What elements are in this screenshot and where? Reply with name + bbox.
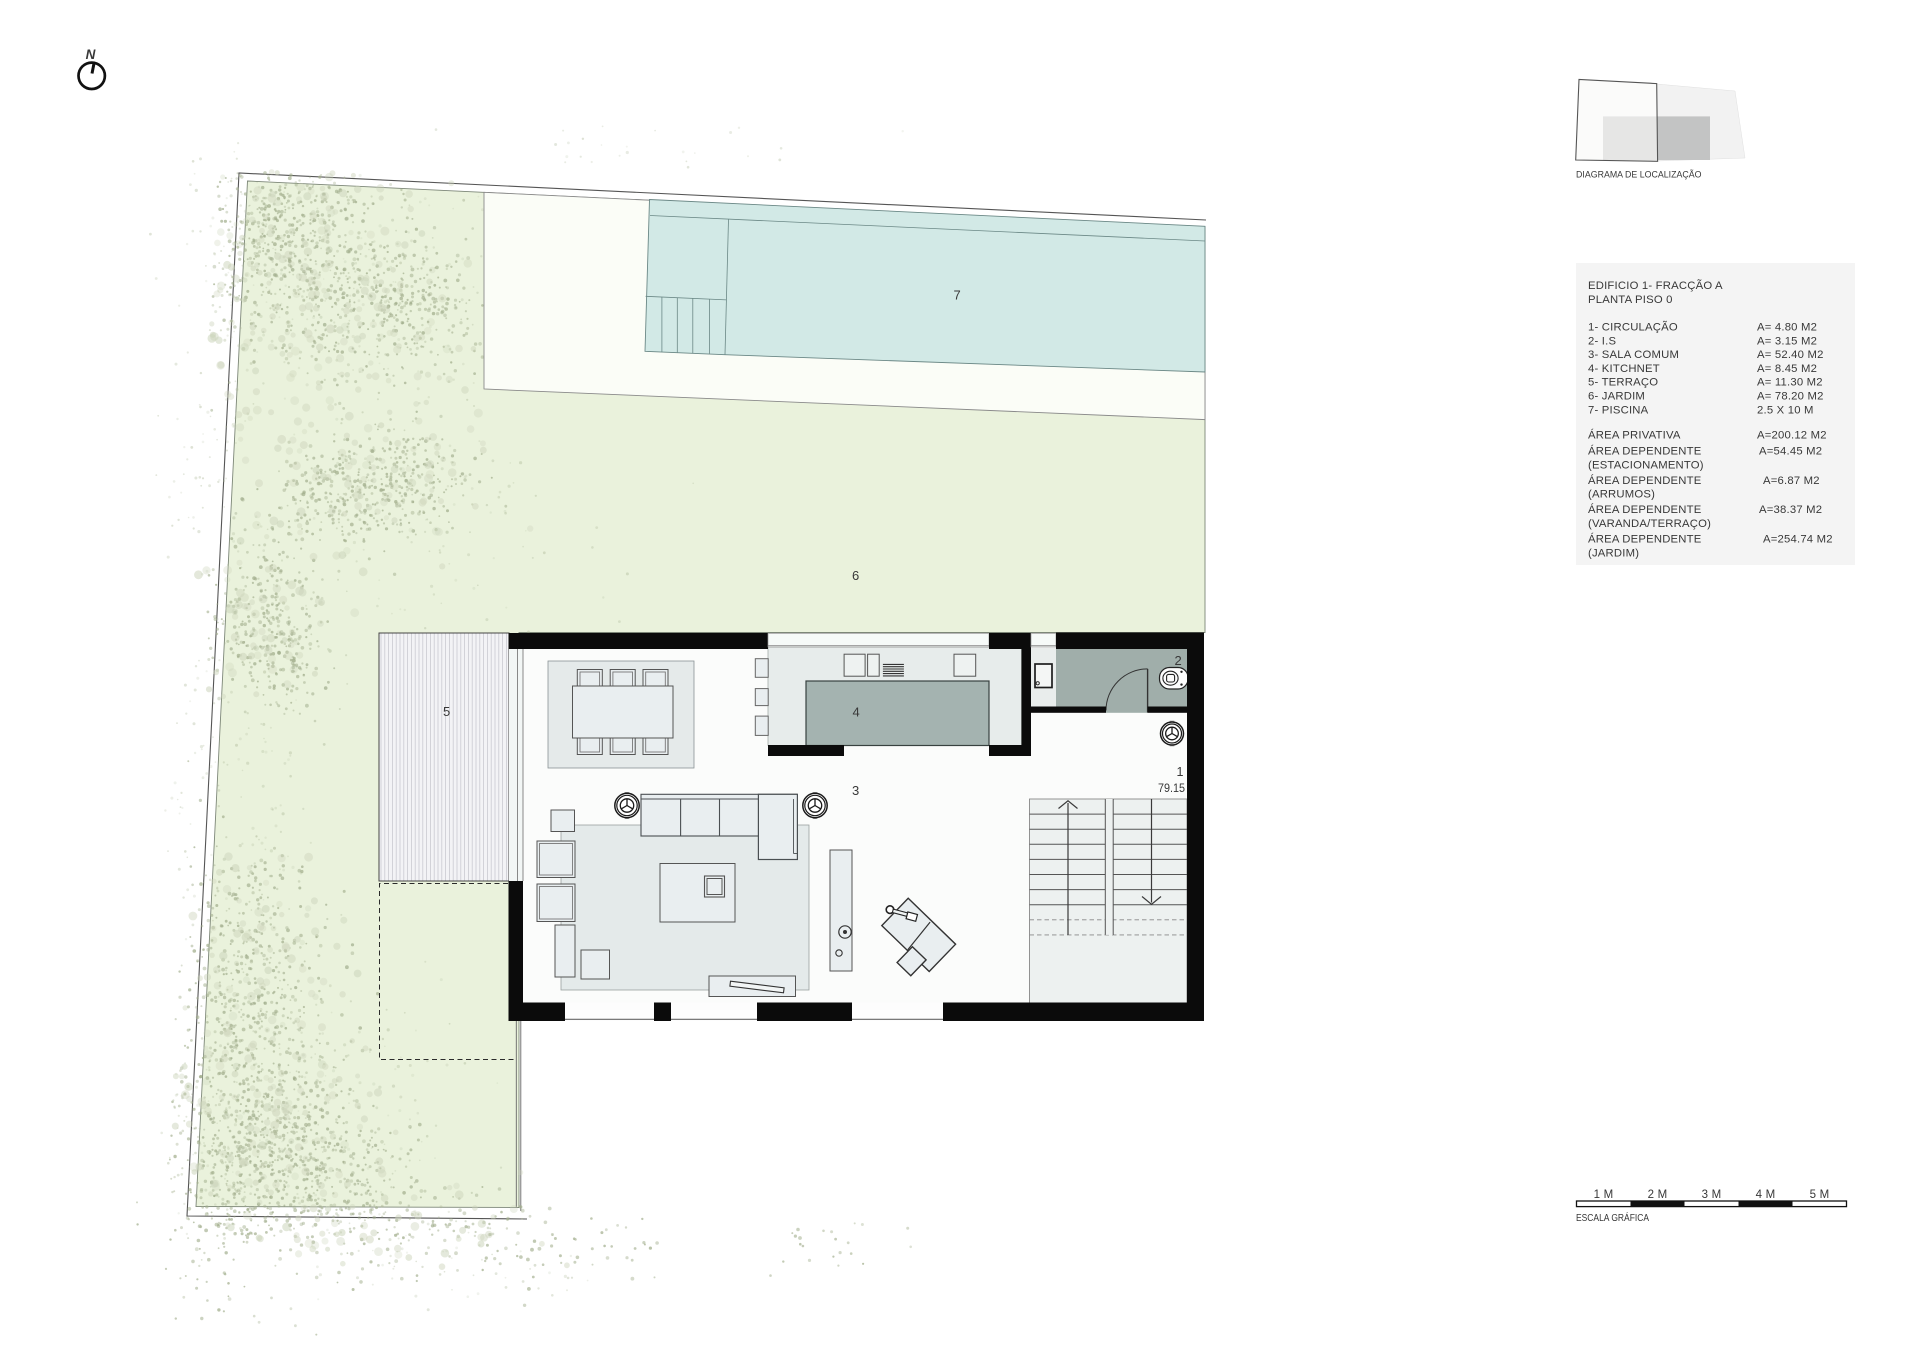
svg-text:5 M: 5 M [1810,1189,1830,1201]
svg-text:A= 4.80 M2: A= 4.80 M2 [1757,322,1817,334]
svg-text:4 M: 4 M [1756,1189,1776,1201]
svg-text:A=54.45 M2: A=54.45 M2 [1759,445,1822,457]
svg-text:(ESTACIONAMENTO): (ESTACIONAMENTO) [1588,459,1704,471]
svg-text:6: 6 [852,568,859,583]
svg-text:A=38.37 M2: A=38.37 M2 [1759,504,1822,516]
svg-text:4: 4 [853,705,860,720]
svg-text:2- I.S: 2- I.S [1588,335,1616,347]
svg-text:EDIFICIO 1- FRACÇÃO A: EDIFICIO 1- FRACÇÃO A [1588,279,1723,292]
svg-text:N: N [86,47,96,62]
svg-text:(VARANDA/TERRAÇO): (VARANDA/TERRAÇO) [1588,518,1711,530]
svg-text:ÁREA PRIVATIVA: ÁREA PRIVATIVA [1588,428,1681,441]
svg-text:A=6.87 M2: A=6.87 M2 [1763,475,1820,487]
svg-text:1: 1 [1177,765,1184,779]
svg-text:ÁREA DEPENDENTE: ÁREA DEPENDENTE [1588,503,1702,516]
svg-text:A= 3.15 M2: A= 3.15 M2 [1757,335,1817,347]
svg-text:(ARRUMOS): (ARRUMOS) [1588,489,1655,501]
svg-text:2 M: 2 M [1648,1189,1668,1201]
svg-text:5- TERRAÇO: 5- TERRAÇO [1588,377,1658,389]
svg-text:DIAGRAMA DE LOCALIZAÇÃO: DIAGRAMA DE LOCALIZAÇÃO [1576,170,1702,181]
svg-text:A= 8.45 M2: A= 8.45 M2 [1757,363,1817,375]
svg-text:A=254.74 M2: A=254.74 M2 [1763,534,1833,546]
svg-text:ESCALA GRÁFICA: ESCALA GRÁFICA [1576,1211,1649,1224]
svg-text:6- JARDIM: 6- JARDIM [1588,391,1645,403]
svg-text:ÁREA DEPENDENTE: ÁREA DEPENDENTE [1588,474,1702,487]
svg-text:A= 78.20 M2: A= 78.20 M2 [1757,391,1824,403]
svg-text:7: 7 [954,288,961,303]
svg-text:3: 3 [852,783,859,798]
svg-text:5: 5 [443,704,450,719]
svg-text:ÁREA DEPENDENTE: ÁREA DEPENDENTE [1588,444,1702,457]
svg-text:3 M: 3 M [1702,1189,1722,1201]
svg-text:PLANTA PISO 0: PLANTA PISO 0 [1588,294,1673,306]
svg-text:1 M: 1 M [1594,1189,1614,1201]
svg-text:A= 11.30 M2: A= 11.30 M2 [1757,377,1823,389]
svg-text:7- PISCINA: 7- PISCINA [1588,404,1649,416]
svg-text:A=200.12 M2: A=200.12 M2 [1757,429,1827,441]
svg-text:3- SALA COMUM: 3- SALA COMUM [1588,349,1679,361]
svg-text:2: 2 [1175,653,1182,668]
svg-text:(JARDIM): (JARDIM) [1588,547,1639,559]
svg-text:4- KITCHNET: 4- KITCHNET [1588,363,1660,375]
svg-text:2.5 X 10 M: 2.5 X 10 M [1757,404,1814,416]
svg-text:1- CIRCULAÇÃO: 1- CIRCULAÇÃO [1588,321,1678,334]
svg-text:79.15: 79.15 [1158,781,1185,795]
svg-text:ÁREA DEPENDENTE: ÁREA DEPENDENTE [1588,533,1702,546]
svg-text:A= 52.40 M2: A= 52.40 M2 [1757,349,1824,361]
